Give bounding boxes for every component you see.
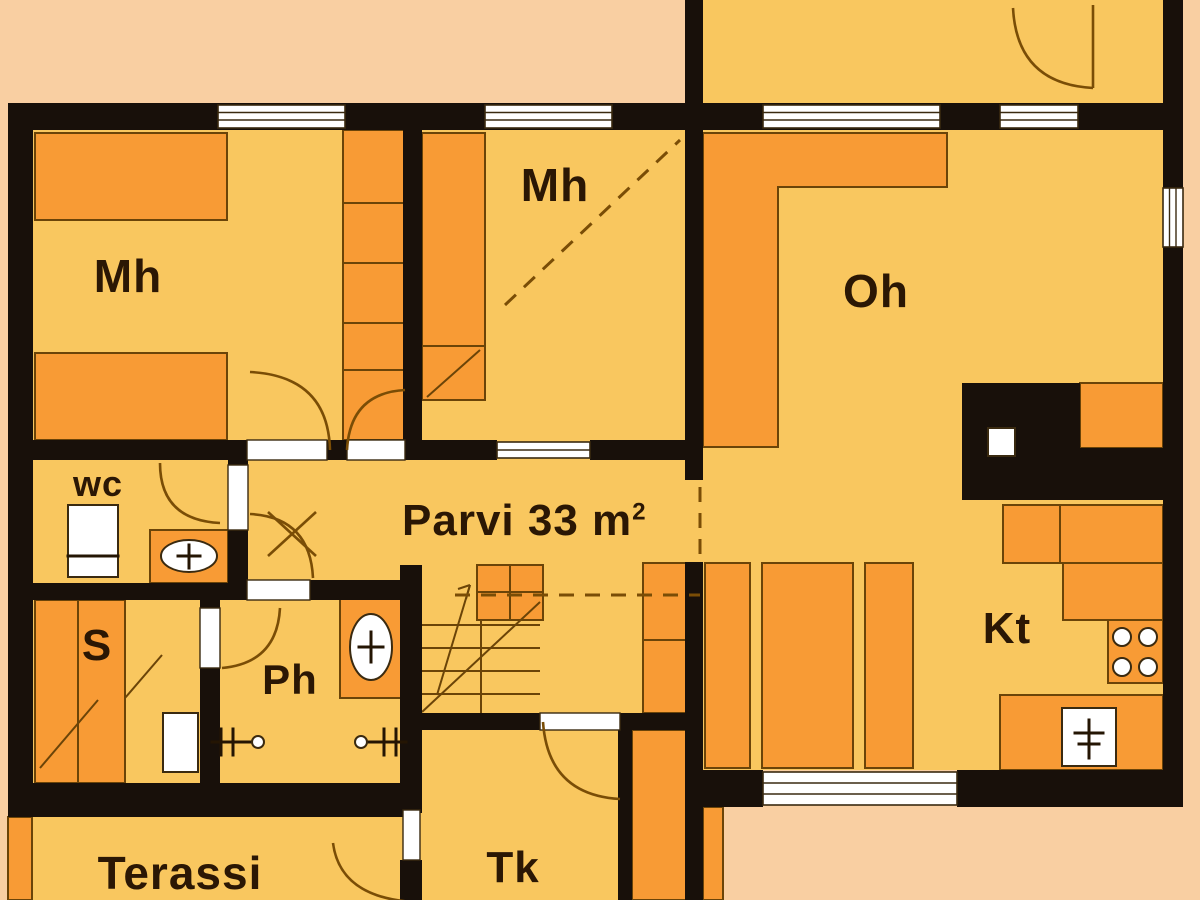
room-label-living: Oh	[843, 264, 909, 318]
terrace-edge	[8, 817, 32, 900]
wardrobe	[343, 130, 405, 440]
wardrobe	[422, 133, 485, 400]
bed	[35, 133, 227, 220]
room-label-bedroom-mid: Mh	[521, 158, 589, 212]
room-label-washroom: Ph	[262, 656, 318, 704]
toilet-icon	[68, 505, 118, 577]
room-label-sauna: S	[82, 621, 112, 671]
room-label-loft: Parvi 33 m2	[402, 496, 647, 546]
door-opening	[347, 440, 405, 460]
sofa-panel	[865, 563, 913, 768]
cabinet-strip	[643, 563, 687, 713]
door-opening	[403, 810, 420, 860]
door-opening	[247, 580, 310, 600]
sauna-stove-icon	[163, 713, 198, 772]
room-label-terrace: Terassi	[98, 846, 263, 900]
room-label-wc: wc	[73, 463, 123, 505]
window	[763, 772, 957, 805]
window	[763, 105, 940, 128]
loft-area-text: Parvi 33 m	[402, 496, 632, 545]
loft-railing	[497, 442, 590, 458]
room-label-bedroom-left: Mh	[94, 249, 162, 303]
window	[1163, 188, 1183, 247]
washbasin-icon	[350, 614, 392, 680]
window	[218, 105, 345, 128]
closet	[632, 730, 687, 900]
exterior-post	[703, 807, 723, 900]
stair-landing	[477, 565, 543, 620]
door-opening	[200, 608, 220, 668]
door-opening	[247, 440, 327, 460]
room-label-kitchen: Kt	[983, 604, 1031, 654]
door-opening	[540, 713, 620, 730]
floorplan: Mh Mh Oh Parvi 33 m2 wc S Ph Kt Tk Teras…	[0, 0, 1200, 900]
room-label-vestibule: Tk	[486, 843, 539, 893]
window	[485, 105, 612, 128]
kitchen-sink-icon	[1062, 708, 1116, 766]
bed	[35, 353, 227, 440]
sofa-panel	[705, 563, 750, 768]
washbasin-icon	[161, 540, 217, 572]
door-opening	[228, 465, 248, 530]
window	[1000, 105, 1078, 128]
floorplan-drawing	[0, 0, 1200, 900]
sofa-panel	[762, 563, 853, 768]
chimney-flue	[988, 428, 1015, 456]
loft-area-sup: 2	[632, 498, 646, 525]
